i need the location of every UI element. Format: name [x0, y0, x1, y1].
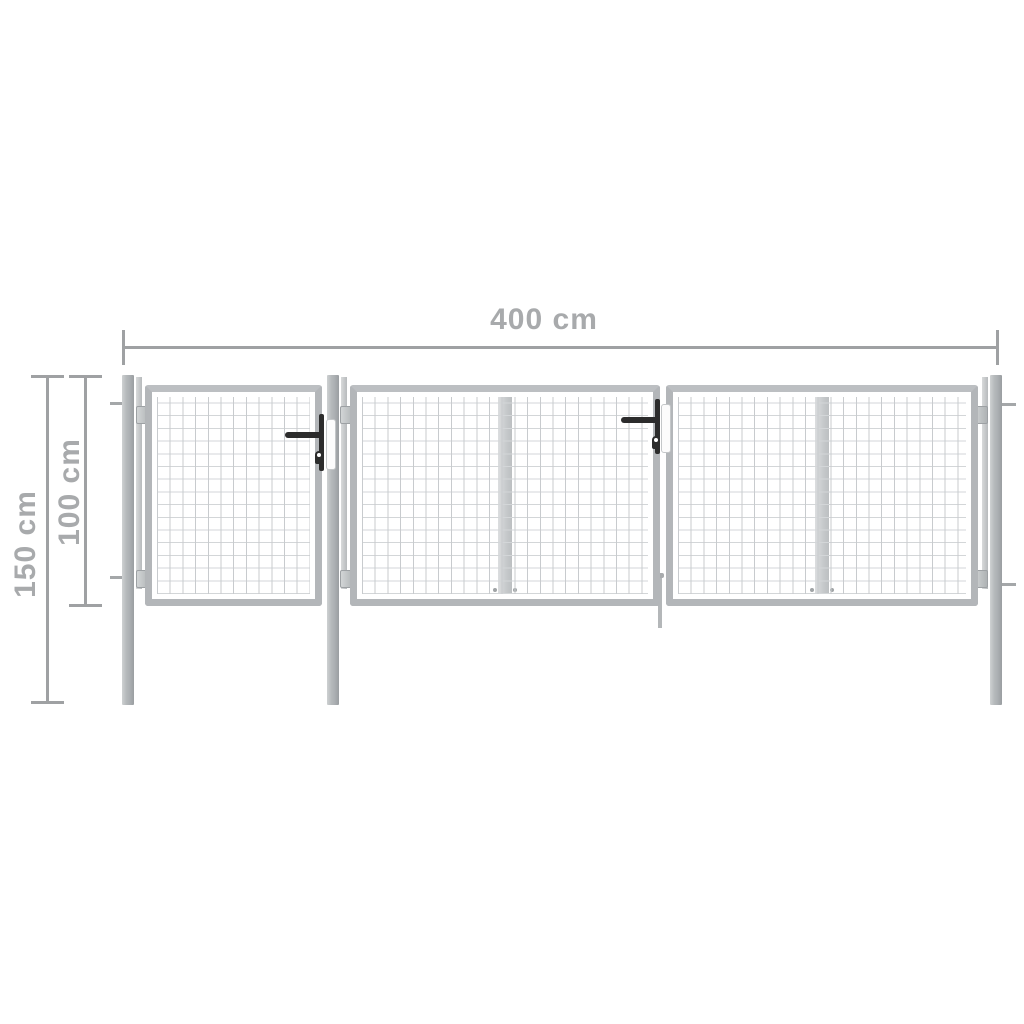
- gate-height-dimension-cap-bottom: [69, 604, 102, 607]
- wire-mesh-grid: [678, 397, 966, 594]
- right-post-hinge-pin-bottom: [1002, 583, 1016, 586]
- width-dimension-line: [123, 346, 998, 349]
- gate-panel-pedestrian: [145, 385, 322, 606]
- wire-mesh-grid: [157, 397, 310, 594]
- gate-panel-left-leaf: [350, 385, 660, 606]
- right-gate-post: [990, 375, 1002, 705]
- total-height-dimension-line: [46, 376, 49, 704]
- mesh-panel: [678, 397, 966, 594]
- mesh-panel: [362, 397, 648, 594]
- lock-plate: [661, 404, 671, 453]
- width-dimension-cap-left: [122, 330, 125, 365]
- width-dimension-cap-right: [996, 330, 999, 365]
- gate-handle-icon: [285, 432, 322, 438]
- gate-panel-right-leaf: [666, 385, 978, 606]
- left-gate-post: [122, 375, 134, 705]
- width-dimension-label: 400 cm: [394, 303, 694, 337]
- total-height-dimension-cap-bottom: [31, 701, 64, 704]
- mesh-panel: [157, 397, 310, 594]
- gate-handle-icon: [621, 417, 658, 423]
- keyhole-icon: [652, 436, 660, 449]
- right-post-hinge-pin-top: [1002, 403, 1016, 406]
- gate-height-dimension-cap-top: [69, 375, 102, 378]
- lock-plate: [326, 419, 336, 470]
- total-height-dimension-label: 150 cm: [10, 474, 42, 614]
- total-height-dimension-cap-top: [31, 375, 64, 378]
- wire-mesh-grid: [362, 397, 648, 594]
- keyhole-icon: [315, 451, 323, 464]
- product-image-canvas: 400 cm 150 cm 100 cm: [0, 0, 1024, 1024]
- gate-height-dimension-label: 100 cm: [54, 422, 86, 562]
